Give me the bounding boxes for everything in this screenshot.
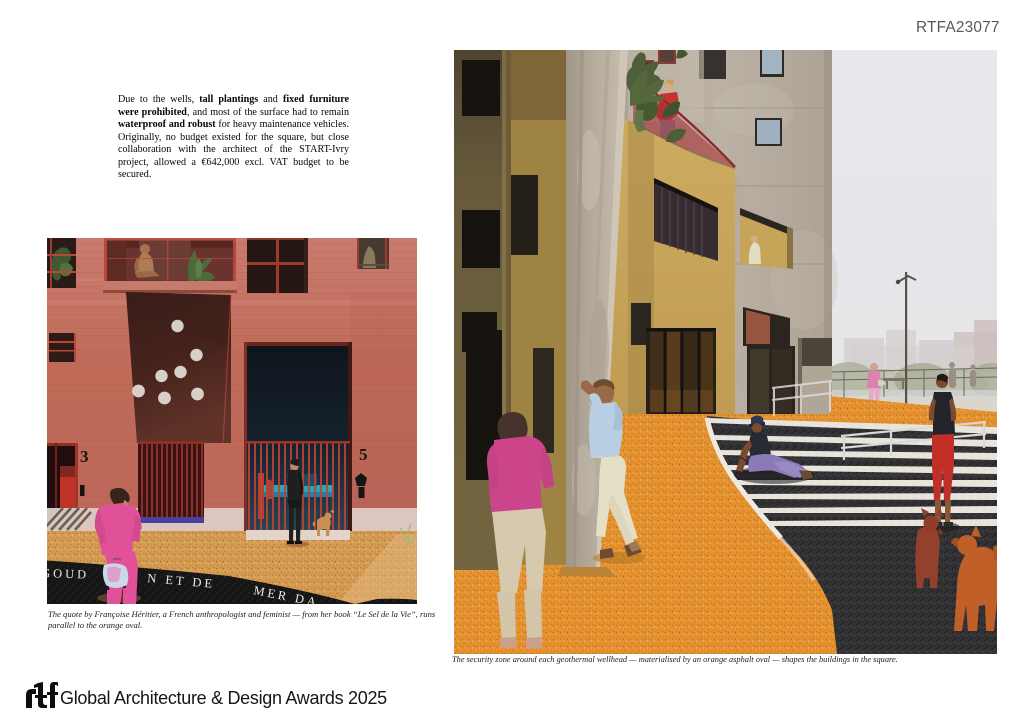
svg-text:3: 3 (80, 447, 89, 466)
svg-text:5: 5 (359, 445, 368, 464)
svg-text:GOUD: GOUD (47, 566, 89, 582)
